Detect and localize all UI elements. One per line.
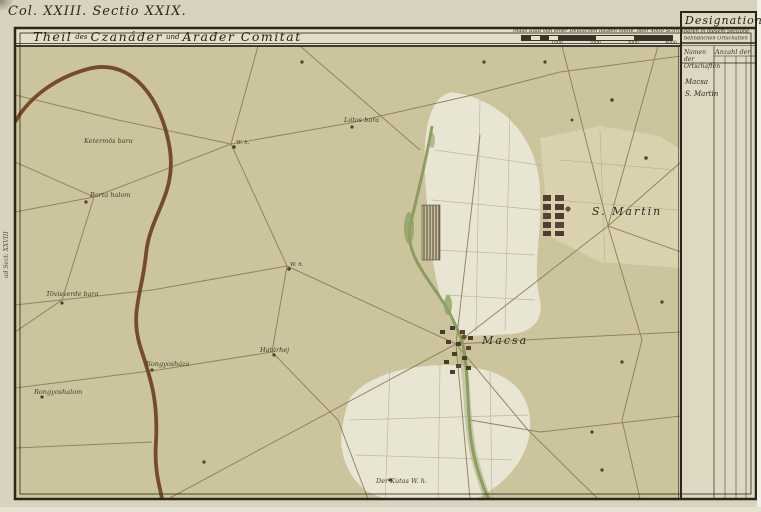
page-edge-bottom: [0, 507, 761, 512]
page-edge-right: [757, 0, 761, 512]
map-canvas: [0, 0, 761, 512]
scalebar-tick: 1000: [551, 41, 562, 46]
title-word: Arader Comitat: [182, 29, 301, 44]
map-title: TheildesCzanáderundArader Comitat: [33, 29, 302, 44]
legend-row-st-martin: S. Martin: [685, 90, 718, 98]
map-sheet: Col. XXIII. Sectio XXIX. TheildesCzanáde…: [0, 0, 761, 512]
legend-title: Designation: [685, 14, 755, 27]
scalebar: Maas Stab von einer Deutschen halben Mei…: [513, 28, 685, 45]
sheet-reference: Col. XXIII. Sectio XXIX.: [8, 4, 187, 19]
legend-column-counts-header: Anzahl der: [715, 48, 755, 56]
scalebar-tick: 3000: [627, 41, 638, 46]
scalebar-tick: 4000: [665, 41, 676, 46]
scalebar-tick: 2000: [589, 41, 600, 46]
scalebar-ticks: 1000 2000 3000 4000: [521, 41, 671, 47]
title-bar: TheildesCzanáderundArader Comitat Maas S…: [15, 28, 681, 46]
scalebar-caption: Maas Stab von einer Deutschen halben Mei…: [513, 28, 676, 34]
legend-column-names-header: Namen der Ortschaften: [684, 49, 714, 70]
legend-row-macsa: Macsa: [685, 78, 708, 86]
legend-panel: Designation deren in diesem Sectione bef…: [681, 12, 756, 499]
title-word: Theil: [33, 29, 72, 44]
title-connector: des: [75, 33, 87, 41]
legend-subtitle-line2: befindlichen Ortschaften: [684, 36, 750, 42]
legend-subtitle-line1: deren in diesem Sectione: [684, 29, 750, 35]
title-connector: und: [166, 33, 180, 41]
title-word: Czanáder: [91, 29, 163, 44]
vineyard-block: [422, 205, 440, 260]
